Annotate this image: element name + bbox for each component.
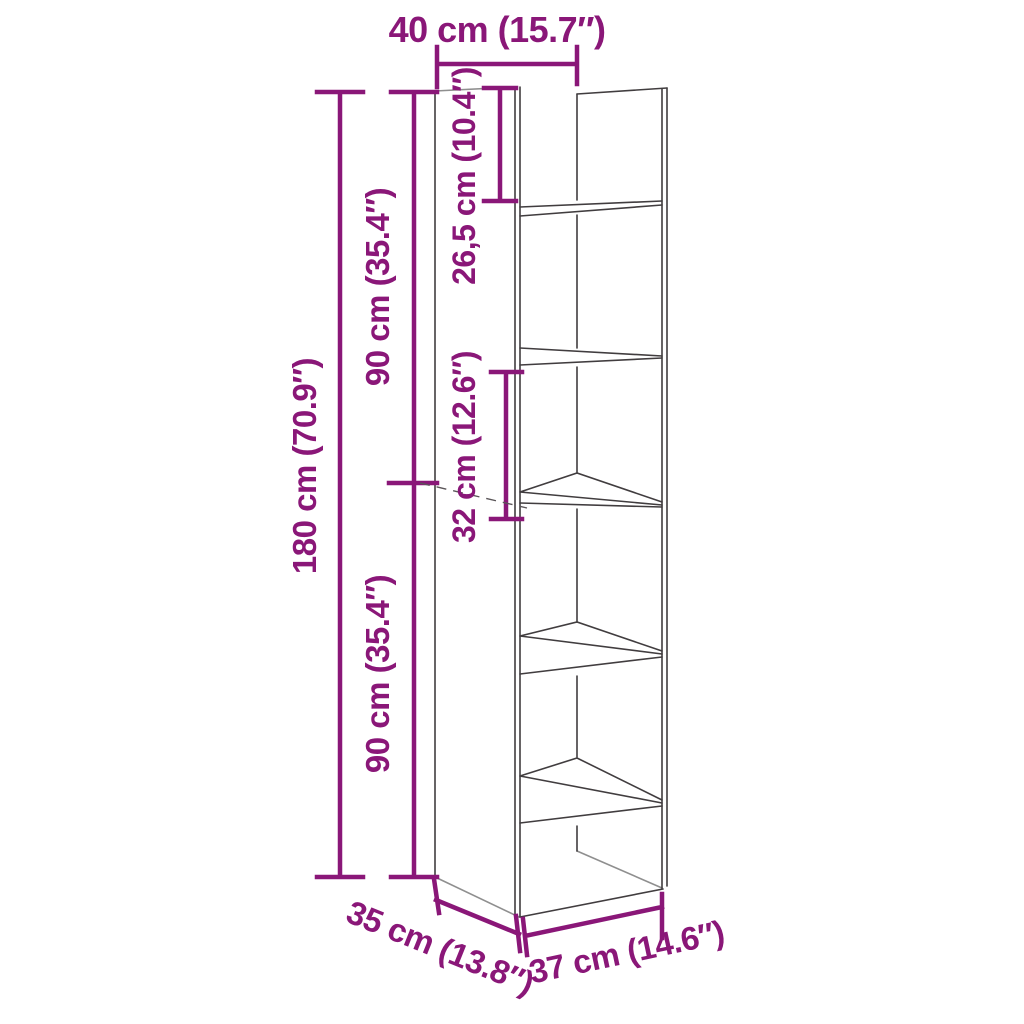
diagram-canvas: 40 cm (15.7″) 180 cm (70.9″) 90 cm (35.4… — [0, 0, 1024, 1024]
label-bottom-width: 37 cm (14.6″) — [526, 913, 728, 990]
shelf-4 — [520, 622, 662, 674]
label-top-compartment-height: 26,5 cm (10.4″) — [446, 67, 482, 285]
top-edge — [577, 88, 667, 94]
front-right-corner-edges — [662, 88, 667, 888]
bookshelf-dimension-diagram: 40 cm (15.7″) 180 cm (70.9″) 90 cm (35.4… — [0, 0, 1024, 1024]
label-lower-section-height: 90 cm (35.4″) — [359, 575, 396, 773]
side-panel-bottom-edge — [435, 877, 519, 917]
dimension-line-section-heights — [389, 92, 437, 877]
dimension-line-top-compartment — [484, 88, 516, 201]
front-left-corner-edges — [515, 87, 520, 917]
dimension-line-total-height — [317, 92, 363, 877]
interior-bottom-back-edge — [577, 851, 662, 888]
label-middle-compartment-height: 32 cm (12.6″) — [446, 351, 482, 543]
shelf-5 — [520, 758, 662, 823]
dimension-line-middle-compartment — [491, 372, 522, 519]
shelves — [520, 201, 662, 823]
label-upper-section-height: 90 cm (35.4″) — [359, 188, 396, 386]
shelf-3 — [520, 473, 662, 507]
label-total-height: 180 cm (70.9″) — [286, 358, 323, 574]
shelf-1 — [520, 201, 662, 216]
label-top-width: 40 cm (15.7″) — [389, 9, 606, 50]
shelf-2 — [520, 348, 662, 365]
